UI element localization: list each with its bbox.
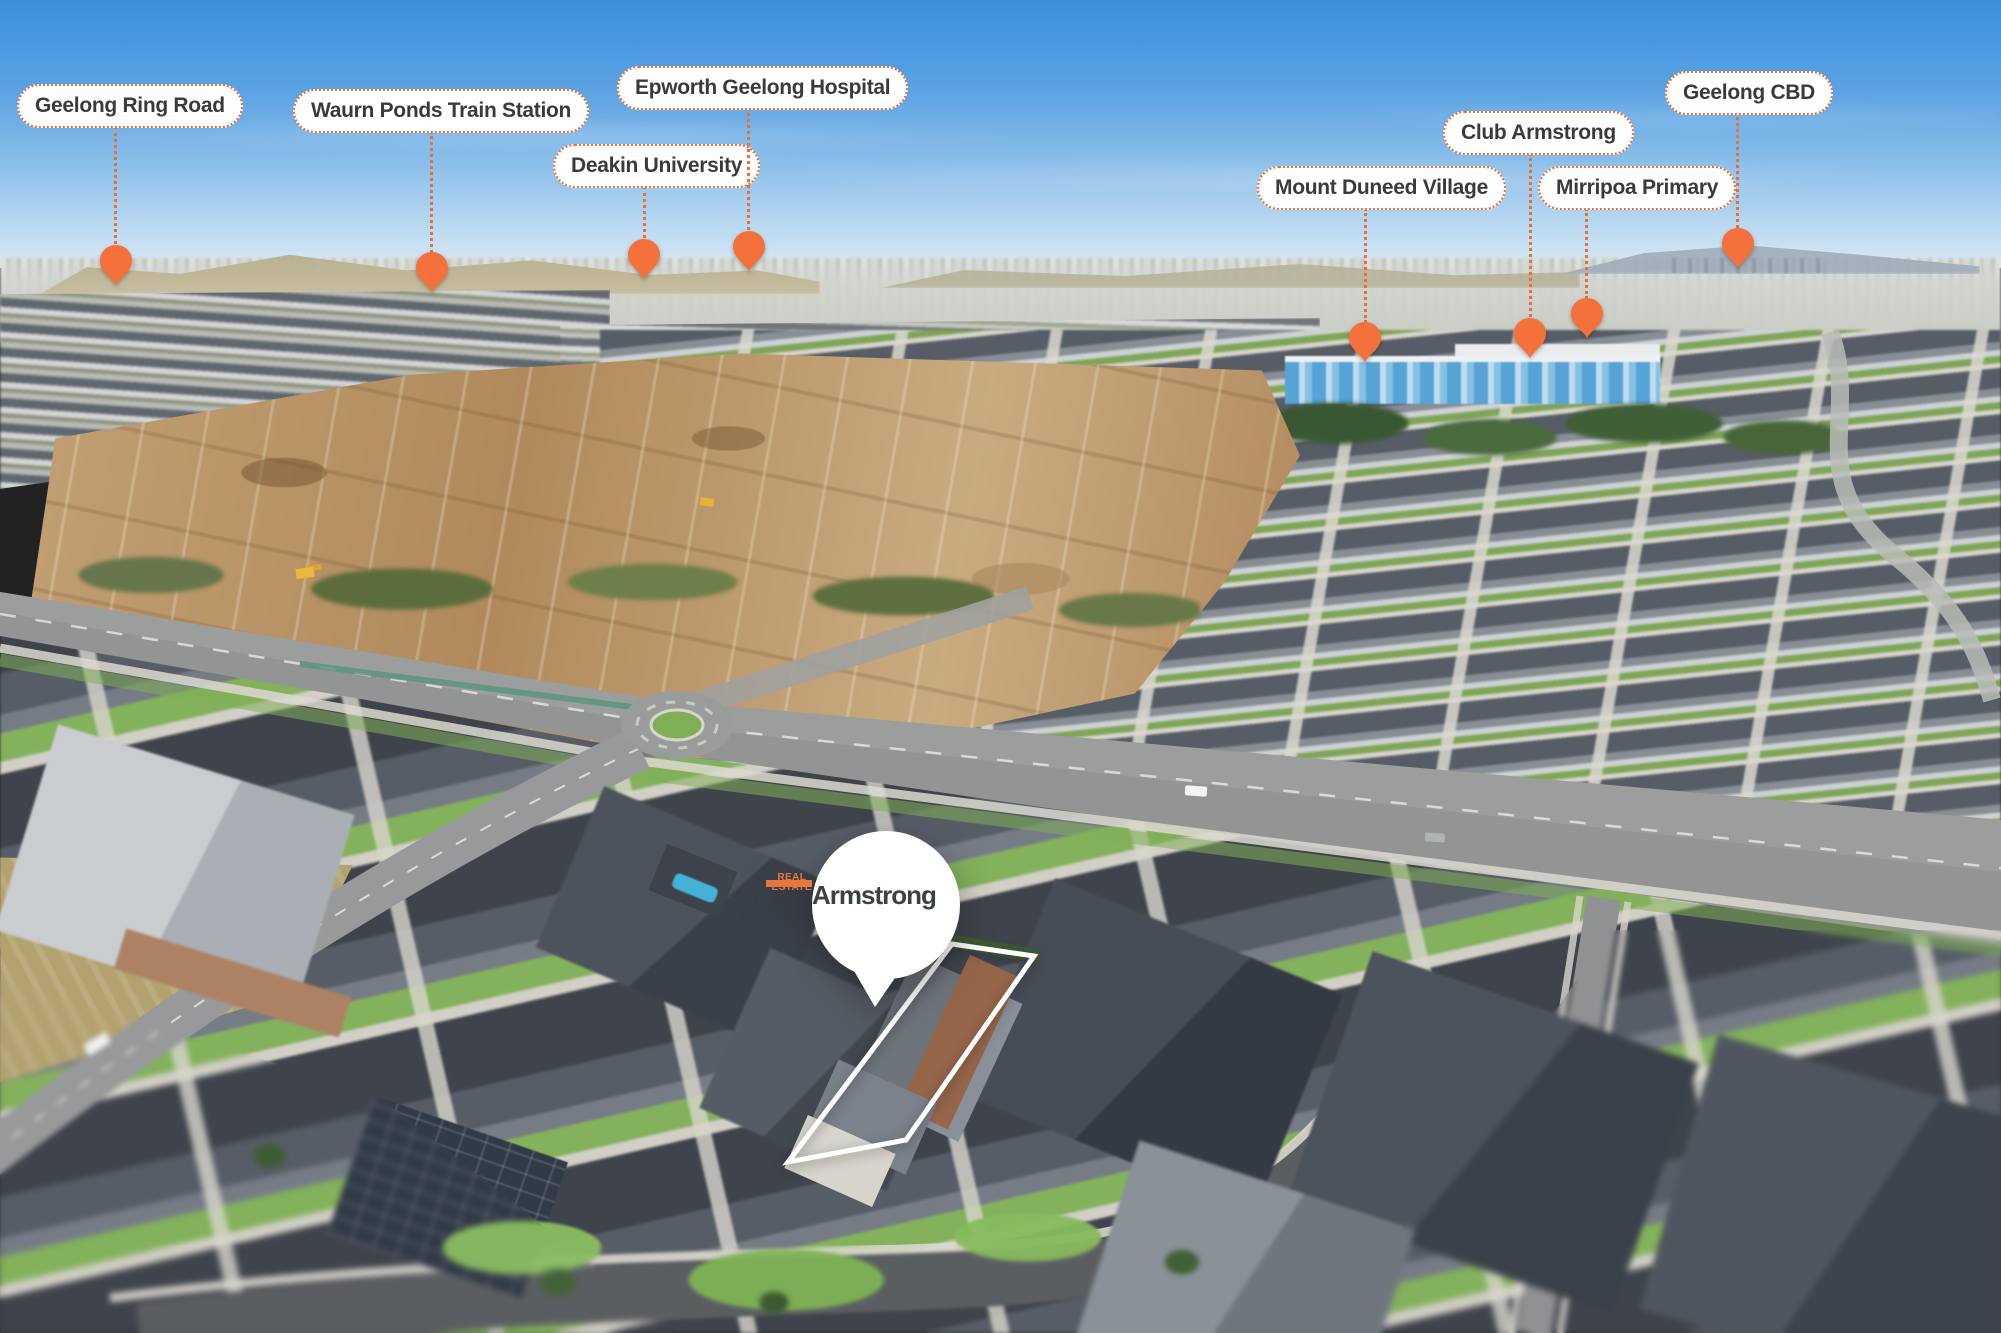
brand-property-marker: Armstrong REAL ESTATE [786, 826, 986, 1016]
map-pin-icon [1513, 317, 1547, 359]
brand-tagline: REAL ESTATE [772, 873, 812, 893]
map-pin-icon [1348, 321, 1382, 363]
leader-line [1529, 153, 1532, 317]
location-label: Deakin University [553, 144, 760, 188]
leader-line [114, 126, 117, 244]
brand-teardrop-marker-icon [786, 826, 986, 1016]
map-pin-icon [415, 251, 449, 293]
map-pin-icon [627, 238, 661, 280]
map-pin-icon [1570, 297, 1604, 339]
leader-line [1736, 111, 1739, 228]
location-label: Mirripoa Primary [1538, 166, 1736, 210]
brand-name: Armstrong [812, 882, 936, 909]
leader-line [643, 186, 646, 238]
leader-line [1585, 208, 1588, 299]
location-label: Club Armstrong [1443, 111, 1634, 155]
location-label: Epworth Geelong Hospital [617, 66, 908, 110]
location-label: Geelong CBD [1665, 71, 1833, 115]
map-pin-icon [99, 244, 133, 286]
map-pin-icon [1721, 227, 1755, 269]
leader-line [747, 108, 750, 230]
aerial-location-photo: Geelong Ring Road Waurn Ponds Train Stat… [0, 0, 2001, 1333]
location-label: Mount Duneed Village [1257, 166, 1506, 210]
location-label: Geelong Ring Road [17, 84, 243, 128]
leader-line [430, 131, 433, 253]
location-label: Waurn Ponds Train Station [293, 89, 589, 133]
leader-line [1364, 208, 1367, 323]
map-pin-icon [732, 230, 766, 272]
